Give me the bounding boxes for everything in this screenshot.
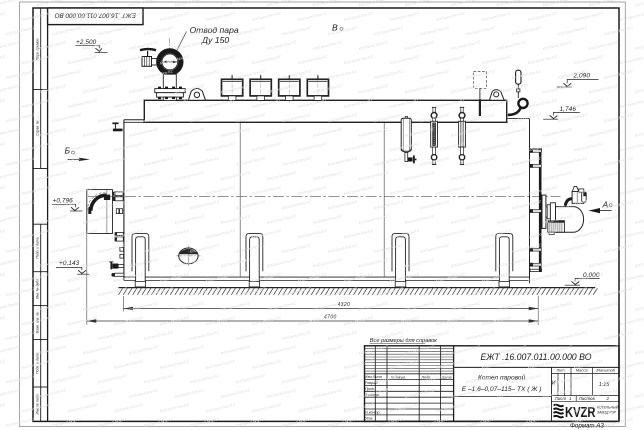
svg-text:2: 2 xyxy=(606,396,610,401)
svg-text:Н.контр.: Н.контр. xyxy=(365,411,381,415)
svg-text:Ду 150: Ду 150 xyxy=(201,35,229,45)
svg-text:Масштаб: Масштаб xyxy=(596,368,615,373)
svg-text:Подп. и дата: Подп. и дата xyxy=(35,237,39,258)
svg-text:И: И xyxy=(552,380,556,386)
svg-text:Лист: Лист xyxy=(554,396,567,401)
svg-text:Инв. № дубл.: Инв. № дубл. xyxy=(35,278,39,299)
svg-text:ЗАВОД РЗР: ЗАВОД РЗР xyxy=(597,411,617,415)
svg-text:Лит.: Лит. xyxy=(555,368,565,373)
svg-text:Пров.: Пров. xyxy=(365,387,375,391)
svg-text:Утв.: Утв. xyxy=(365,417,373,421)
